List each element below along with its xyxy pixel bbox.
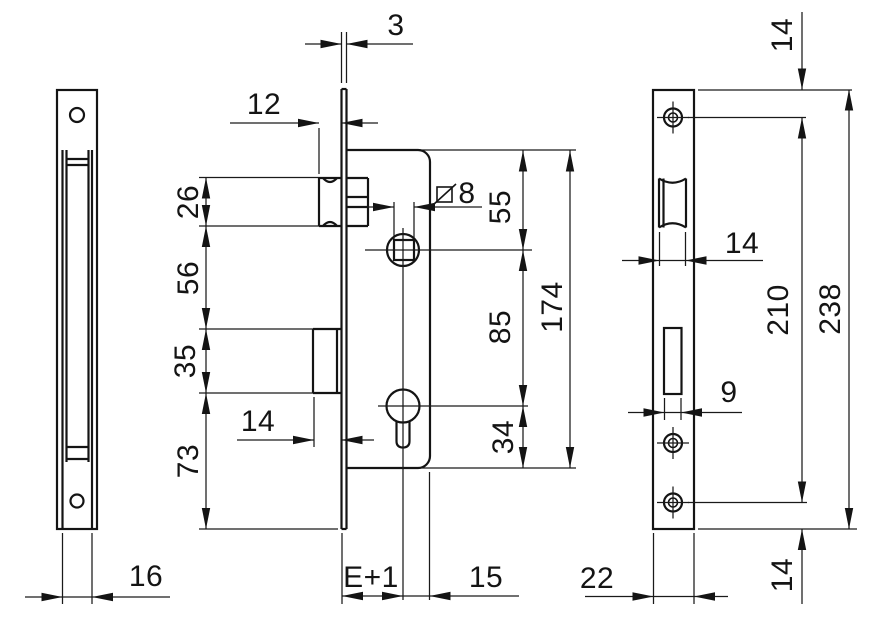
dim-label-cylinder-to-bottom: 34 [487,420,520,454]
square-section-symbol-icon [433,184,456,205]
dim-label-backset-plus-one: E+1 [343,561,399,594]
faceplate-edge-view: 16 [25,90,170,604]
dim-spindle-square: 8 [368,177,482,239]
dim-label-deadbolt-to-plate-bottom: 73 [172,444,205,478]
dim-case-depth: 16 [25,533,170,604]
dim-label-top-to-spindle: 55 [484,190,517,224]
bottom-mounting-hole [71,495,84,508]
dim-label-spindle-square: 8 [458,177,475,210]
lock-case-edge-lines [63,150,93,529]
screw-hole-top [657,102,689,134]
latch-opening [659,179,686,228]
deadbolt [313,329,342,393]
dim-label-plate-width: 22 [580,562,614,595]
dim-deadbolt-throw: 14 [237,397,374,447]
dim-label-case-height: 174 [536,281,569,333]
dim-plate-width: 22 [580,533,728,604]
faceplate-front-outline [653,90,694,529]
screw-hole-bottom [657,487,689,519]
drawing-canvas: 16 [0,0,881,637]
technical-drawing-page: 16 [0,0,881,637]
centerlines [365,228,532,600]
dim-label-plate-thickness: 3 [387,9,404,42]
dim-label-deadbolt-height: 35 [169,344,202,378]
dim-case-height: 174 [536,151,574,469]
dim-label-latch-width: 14 [725,227,759,260]
dim-label-deadbolt-throw: 14 [241,405,275,438]
faceplate-front-view: 14 9 22 14 2 [580,12,857,604]
dim-deadbolt-width: 9 [628,376,742,420]
dim-label-screw-to-plate-bottom: 14 [766,558,799,592]
dim-label-screw-spacing: 210 [762,284,795,336]
lock-case-section-view: 3 12 26 56 35 [169,9,576,604]
dim-label-case-depth: 16 [129,560,163,593]
dim-latch-width: 14 [622,227,763,266]
dim-plate-thickness: 3 [305,9,413,48]
dim-label-plate-top-to-screw: 14 [766,18,799,52]
dim-label-latch-height: 26 [172,185,205,219]
deadbolt-opening [664,328,682,394]
screw-hole-middle [657,427,689,459]
top-mounting-hole [70,108,84,122]
dim-chain-right: 55 85 34 [484,151,527,469]
dim-latch-projection: 12 [230,88,378,174]
dim-label-plate-height: 238 [814,283,847,335]
dim-label-latch-projection: 12 [247,88,281,121]
dim-screw-column: 14 210 14 [762,12,806,604]
dim-label-spindle-to-cylinder: 85 [484,310,517,344]
dim-label-latch-to-deadbolt: 56 [172,261,205,295]
latch-bolt [319,178,368,226]
dim-label-axis-to-back: 15 [469,561,503,594]
faceplate-side [342,32,347,529]
dim-backset-row: E+1 15 [342,533,519,604]
dim-plate-height: 238 [814,90,853,530]
dim-label-deadbolt-width: 9 [720,376,737,409]
